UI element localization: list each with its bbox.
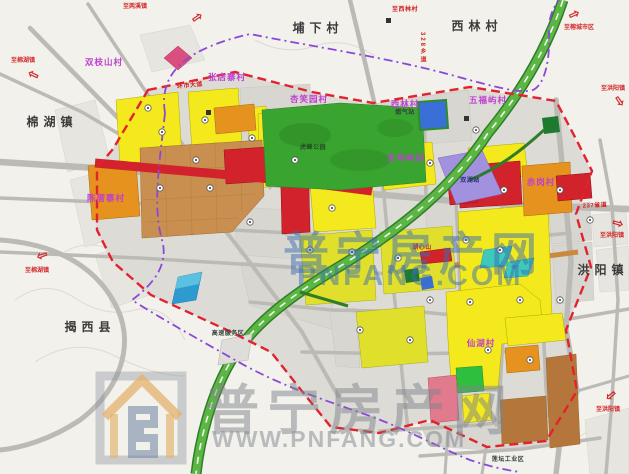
planning-map-image: 埔下村西林村棉湖镇揭西县洪阳镇双枝山村张店寨村杏笑园村西林村五福屿村东华屿村陈厝… [0, 0, 629, 474]
watermark-house-logo [94, 366, 188, 466]
